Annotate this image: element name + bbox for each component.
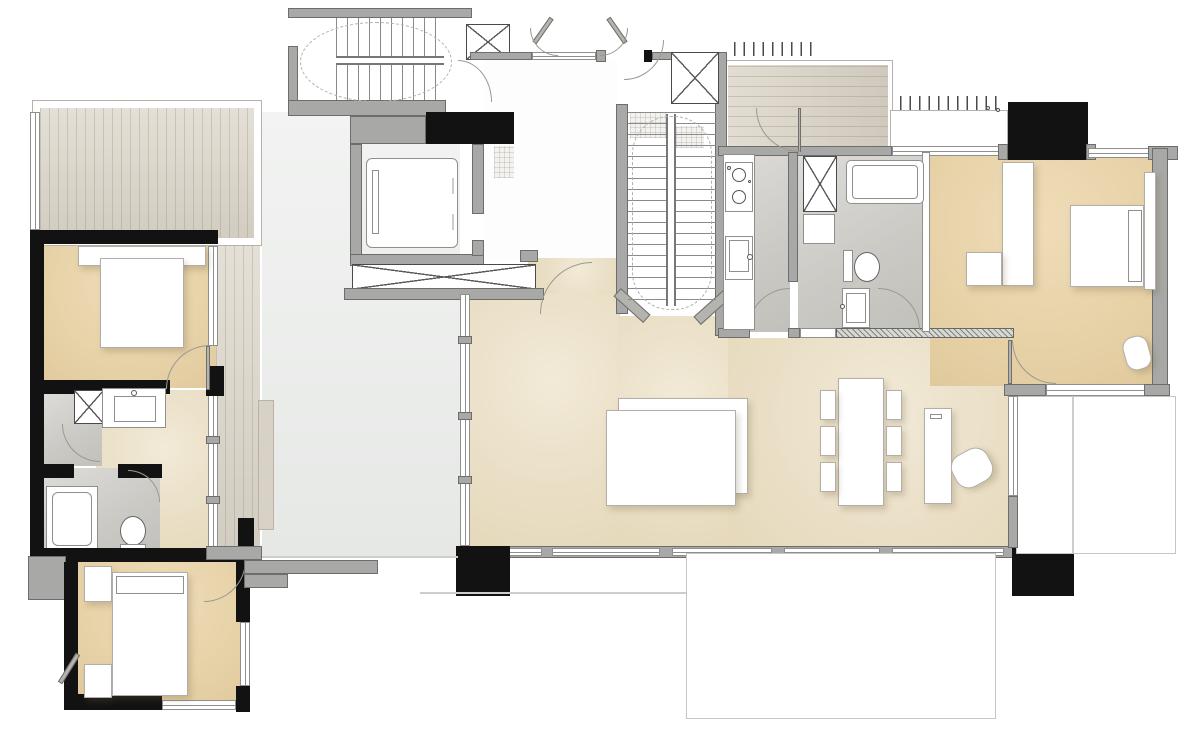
bathroom1-basin: [114, 396, 156, 422]
stair1-walkline: [300, 22, 452, 102]
dining-chair-2: [820, 426, 836, 456]
north-window: [532, 52, 596, 60]
hall-door-post: [520, 250, 538, 262]
bedroom2-south-wall: [64, 694, 162, 710]
bathtub-inner: [852, 165, 918, 199]
storage-closet-xbox: [352, 264, 536, 290]
bathroom1-shaft-xbox: [74, 390, 104, 424]
deck1-planks: [40, 108, 254, 238]
void-edge-line: [262, 556, 458, 558]
column-ne-post-left: [998, 144, 1008, 160]
elevator-wall-right-a: [472, 144, 484, 214]
walkway-planks: [216, 246, 260, 558]
terrace-east-window: [1008, 396, 1018, 496]
bedroom3-closet-tall: [1002, 162, 1034, 286]
cooktop-knob-b: [748, 180, 751, 183]
bedroom1-north-wall: [30, 230, 218, 244]
bedroom3-pillow: [1128, 210, 1142, 282]
terrace-outline-east: [1016, 396, 1176, 554]
railing-end-hook-b: [996, 108, 1000, 112]
column-northeast: [1008, 102, 1088, 160]
stair1-wall-left: [288, 46, 298, 108]
elevator-car-rail: [372, 170, 379, 234]
black-wall-band: [426, 112, 514, 144]
elevator-lobby-wall: [350, 116, 426, 144]
sofa-front-section: [606, 410, 736, 506]
bedroom3-closet-low: [966, 252, 1002, 286]
deck2-railing-ticks: [734, 42, 812, 56]
kitchen-sink-basin: [729, 240, 749, 272]
wc-toilet-bowl: [120, 516, 146, 546]
bedroom2-south-window: [162, 700, 236, 710]
bedroom3-door-leaf: [1008, 340, 1012, 384]
kitchen-top-window: [892, 146, 1008, 156]
dining-table: [838, 378, 884, 506]
balcony-outline-south: [686, 553, 996, 719]
bedroom3-south-wall-a: [1004, 384, 1046, 396]
burner-front: [732, 168, 746, 182]
dining-chair-5: [886, 426, 902, 456]
kitchen-bath-divider: [788, 152, 798, 282]
walkway-grey-sill: [206, 546, 262, 560]
hall-window-post-a: [206, 436, 220, 444]
void-window-post-a: [458, 336, 472, 344]
bedroom2-corner-black: [236, 686, 250, 712]
bedroom2-west-wall: [64, 562, 78, 708]
deck2-planks: [728, 65, 888, 147]
elevator-wall-left: [350, 144, 362, 266]
stair2-walkline: [632, 116, 712, 310]
void-window-post-c: [458, 476, 472, 484]
kitchen-faucet: [747, 254, 753, 260]
bedroom1-bed: [100, 258, 184, 348]
bedroom3-south-wall-b: [1144, 384, 1170, 396]
stair1-wall-top: [288, 8, 472, 18]
elevator-car: [366, 158, 458, 248]
living-room-floor-west: [468, 286, 620, 556]
console-handle: [930, 414, 942, 419]
walkway-grey-step-a: [244, 560, 378, 574]
bath2-south-niche: [800, 328, 836, 338]
floor-plan: [0, 0, 1200, 747]
hall-window-west: [208, 392, 218, 548]
west-grey-block: [28, 556, 66, 600]
walkway-black-post: [238, 518, 254, 546]
console-cabinet: [924, 408, 952, 504]
deck1-west-window: [30, 112, 40, 230]
living-south-window-b: [552, 548, 660, 556]
hall-window-post-b: [206, 496, 220, 504]
bedroom2-nightstand-a: [84, 566, 112, 602]
roof-edge-line: [420, 592, 686, 594]
bedroom3-wardrobe: [1144, 172, 1156, 290]
stair2-door-arc: [624, 40, 664, 80]
column-southwest: [456, 546, 510, 596]
bathroom1-faucet: [131, 390, 137, 396]
wc-wall-bit-a: [30, 464, 74, 478]
walkway-bench: [258, 400, 274, 530]
bathroom2-toilet-tank: [843, 250, 853, 282]
elevator-door-jamb-b: [452, 214, 454, 230]
railing-end-hook-a: [986, 106, 990, 110]
dining-chair-4: [886, 390, 902, 420]
bedroom3-south-window: [1046, 384, 1146, 396]
void-window-east: [460, 294, 470, 546]
bedroom2-pillow: [116, 576, 184, 594]
terrace-east-divider: [1072, 396, 1074, 554]
dining-chair-6: [886, 462, 902, 492]
storage-wall-bottom: [344, 288, 544, 300]
bedroom2-nightstand-b: [84, 664, 112, 698]
terrace-east-wall: [1008, 496, 1018, 548]
elevator-wall-right-b: [472, 240, 484, 256]
bedroom3-north-window: [1088, 148, 1152, 158]
west-black-wall: [30, 244, 44, 560]
laundry-shower-inner: [52, 492, 92, 546]
bedroom1-window-east: [208, 246, 218, 346]
bedroom2-east-window: [240, 622, 250, 686]
bathroom2-cabinet: [803, 214, 835, 244]
shaft2-xbox: [671, 52, 719, 104]
walkway-grey-step-b: [244, 574, 288, 588]
bathroom2-faucet: [840, 304, 845, 309]
dining-chair-3: [820, 462, 836, 492]
elevator-door-jamb-a: [452, 178, 454, 194]
north-wall-a: [470, 52, 532, 60]
void-window-post-b: [458, 412, 472, 420]
bathroom2-toilet-bowl: [854, 252, 880, 282]
stair1-wall-bottom: [288, 100, 446, 116]
bathroom2-shaft-xbox: [803, 156, 837, 212]
dining-chair-1: [820, 390, 836, 420]
burner-back: [732, 190, 746, 204]
stair2-wall-left: [616, 104, 628, 314]
bathroom2-sink-basin: [846, 293, 866, 323]
lobby-grid-mat: [494, 146, 514, 178]
cooktop-knob-a: [727, 166, 731, 170]
